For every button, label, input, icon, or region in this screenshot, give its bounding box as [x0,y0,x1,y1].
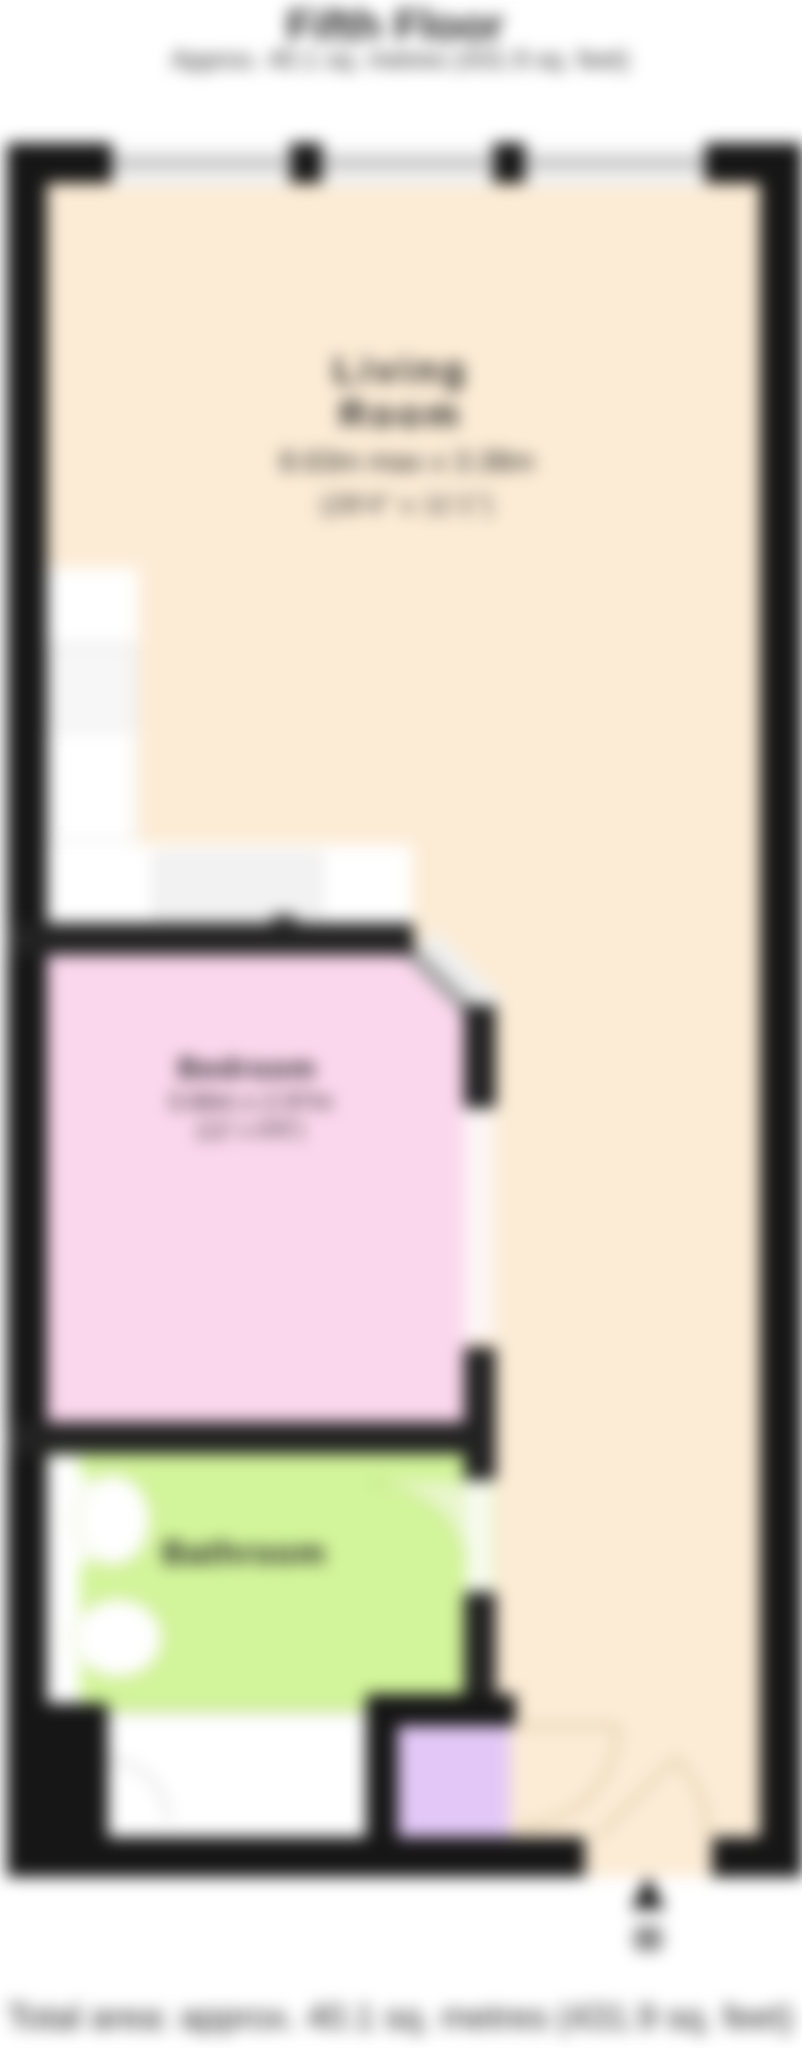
svg-text:3.66m x 2.97m: 3.66m x 2.97m [167,1088,332,1116]
svg-text:Total area: approx. 40.1 sq. m: Total area: approx. 40.1 sq. metres (431… [7,1998,793,2037]
svg-text:Living: Living [333,350,469,392]
svg-text:Approx. 40.1 sq. metres (431.9: Approx. 40.1 sq. metres (431.9 sq. feet) [171,44,629,74]
svg-text:(28'4" x 11'1"): (28'4" x 11'1") [321,489,494,519]
svg-text:Fifth Floor: Fifth Floor [286,1,504,50]
svg-text:(12' x 9'9"): (12' x 9'9") [196,1117,304,1143]
svg-text:Bathroom: Bathroom [162,1534,326,1571]
svg-text:Bedroom: Bedroom [178,1052,317,1085]
svg-text:Room: Room [339,394,463,436]
svg-text:8.63m max x 3.38m: 8.63m max x 3.38m [280,446,535,478]
